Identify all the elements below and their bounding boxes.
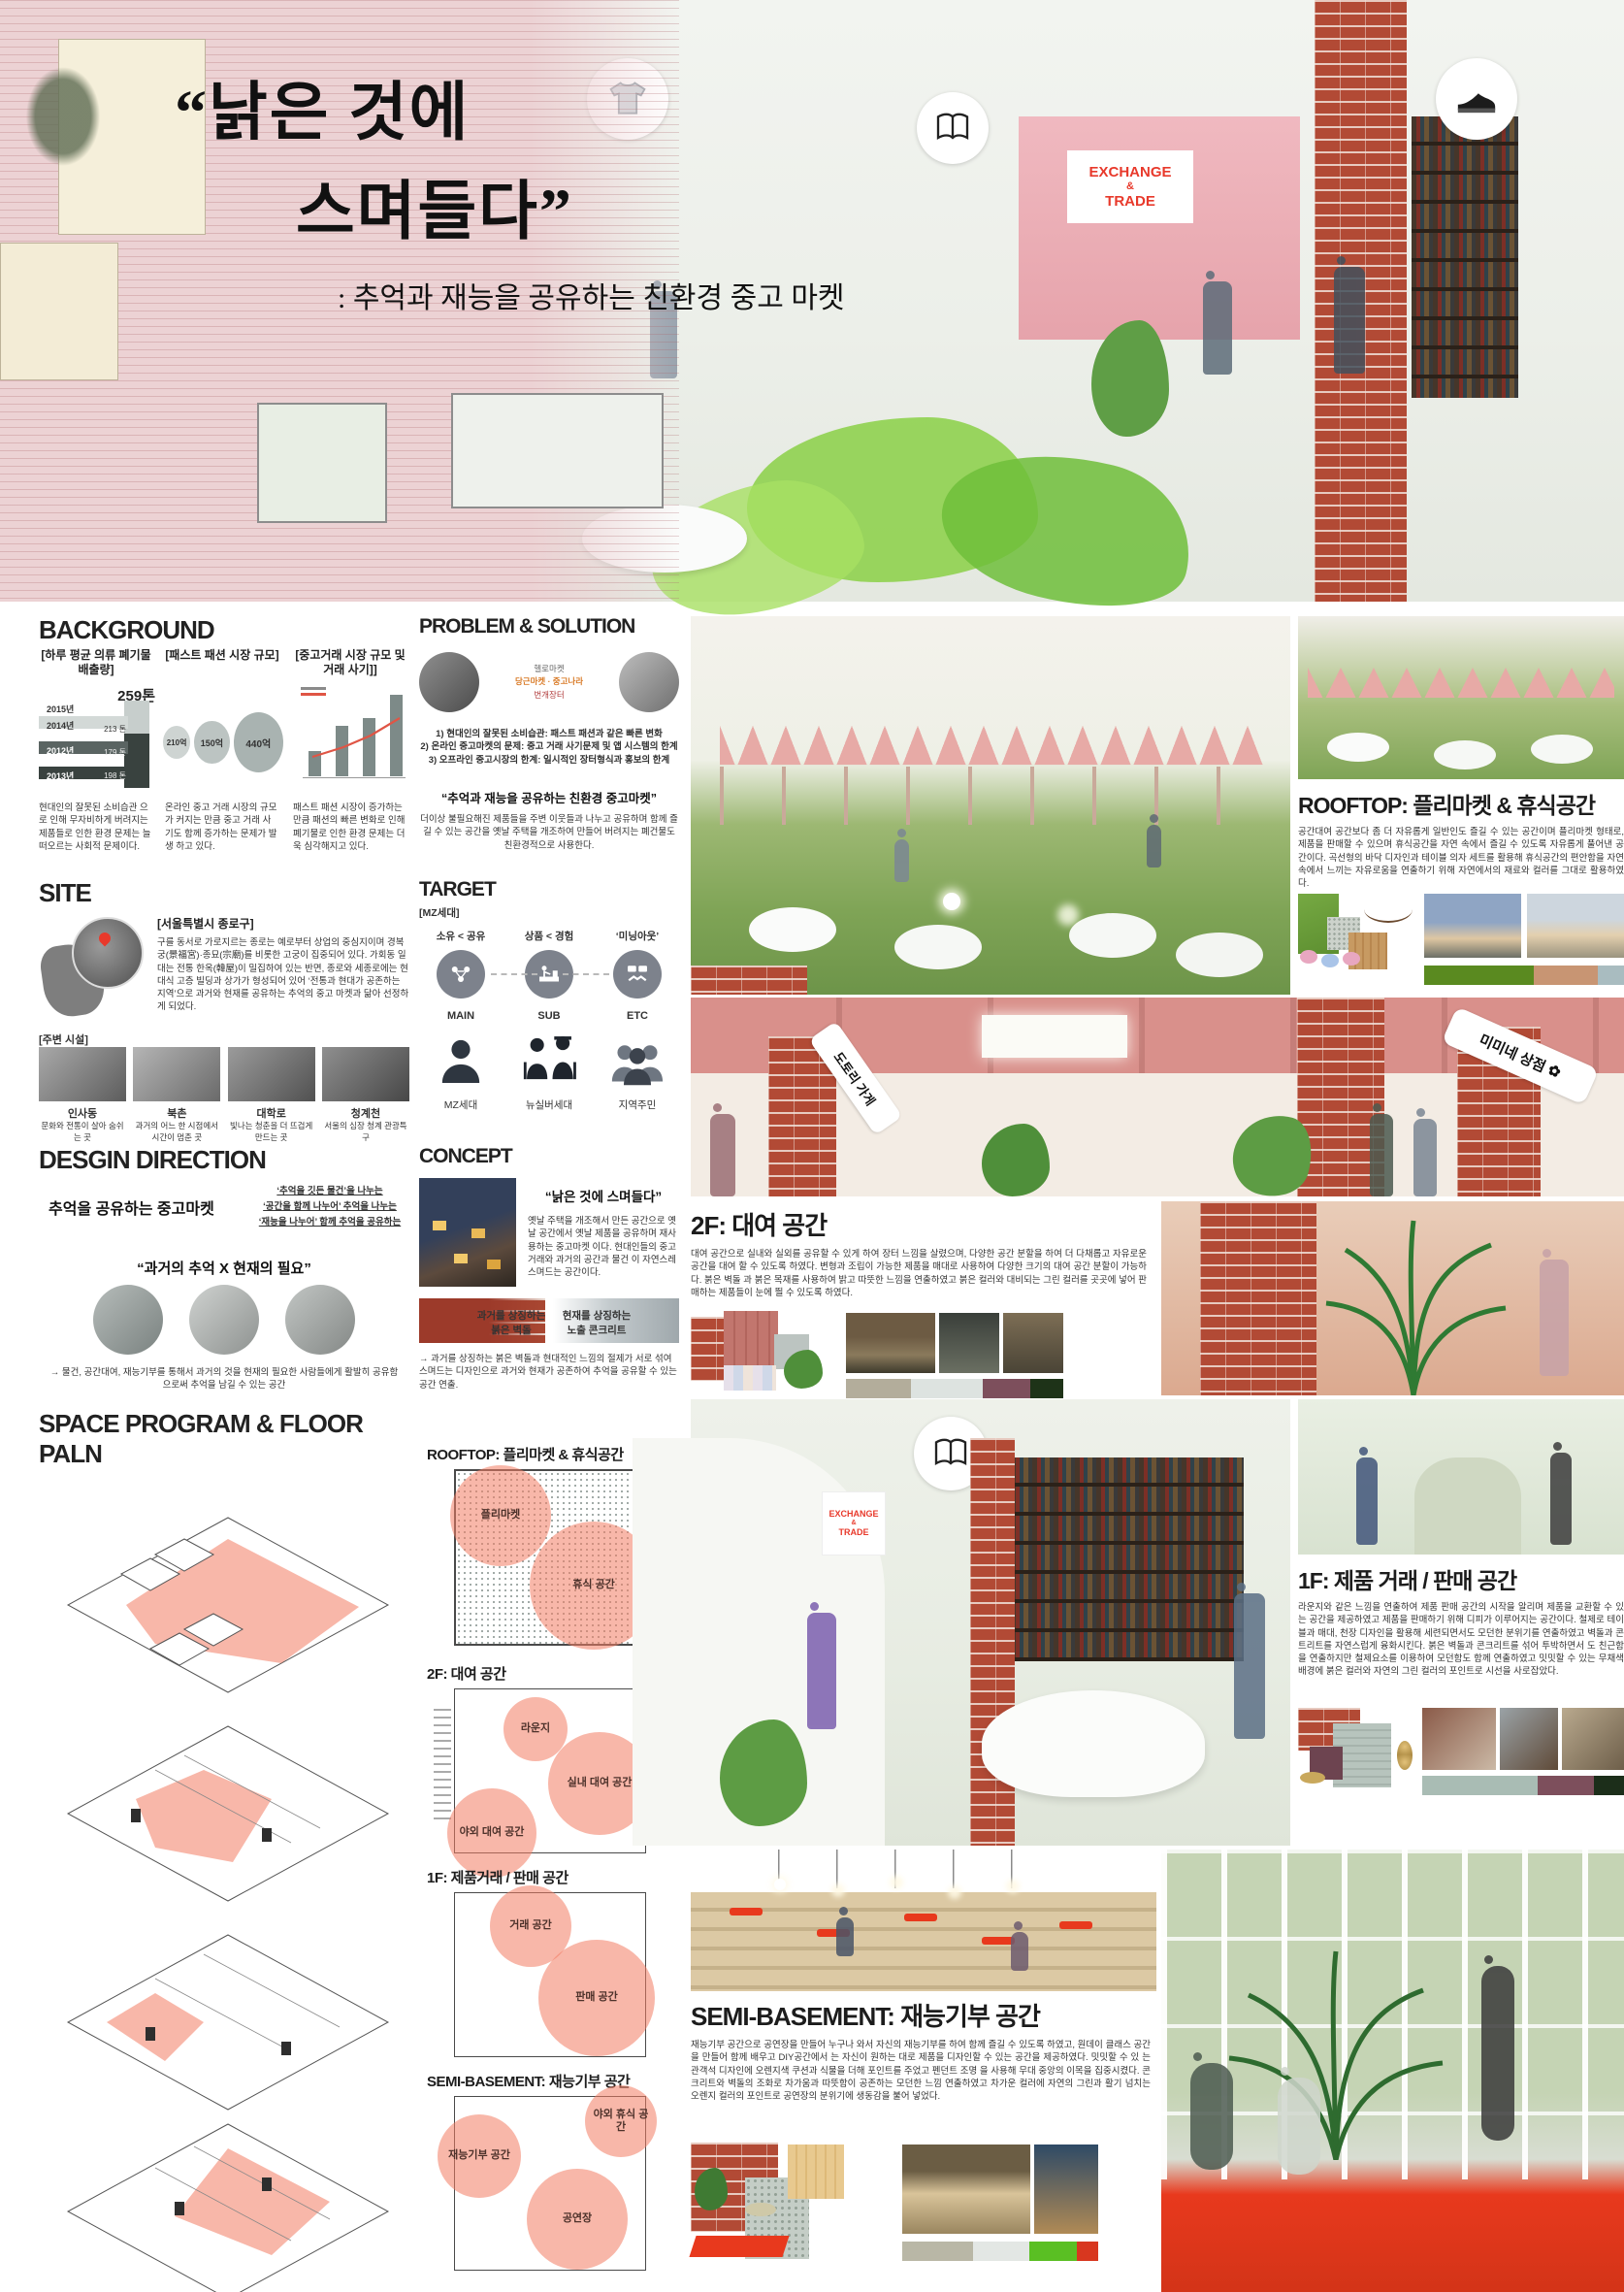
tier-label: ETC bbox=[596, 1010, 679, 1022]
trait: 상품 < 경험 bbox=[507, 929, 591, 943]
chart2-caption: 온라인 중고 거래 시장의 규모가 커지는 만큼 중고 거래 사기도 함께 증가… bbox=[165, 802, 279, 853]
plan-zone: 판매 공간 bbox=[538, 1940, 655, 2056]
sign-line3: TRADE bbox=[839, 1527, 869, 1538]
nearby-desc: 과거의 어느 한 시점에서 시간이 멈춘 곳 bbox=[133, 1121, 220, 1144]
f1-description: 라운지와 같은 느낌을 연출하여 제품 판매 공간의 시작을 알리며 제품을 교… bbox=[1298, 1601, 1624, 1679]
trait: ‘미닝아웃’ bbox=[596, 929, 679, 943]
person-figure bbox=[1190, 2063, 1233, 2170]
person-figure bbox=[1147, 825, 1161, 868]
plan-zone: 야외 휴식 공간 bbox=[585, 2085, 657, 2157]
f1-title: 1F: 제품 거래 / 판매 공간 bbox=[1298, 1562, 1624, 1595]
red-cushion bbox=[730, 1908, 763, 1915]
bubble-value: 150억 bbox=[201, 737, 223, 749]
elevation-planter bbox=[19, 58, 107, 175]
trend-line bbox=[299, 687, 407, 790]
sneaker-icon bbox=[1436, 58, 1517, 140]
design-direction-section: DESGIN DIRECTION 추억을 공유하는 중고마켓 ‘추억을 깃든 물… bbox=[39, 1145, 409, 1399]
direction-conclusion: → 물건, 공간대여, 재능기부를 통해서 과거의 것을 현재의 필요한 사람들… bbox=[49, 1366, 400, 1392]
pendant-lights bbox=[778, 1850, 1069, 1888]
plan-zone: 플리마켓 bbox=[450, 1465, 551, 1566]
site-map bbox=[39, 917, 146, 1024]
palette-color bbox=[1424, 966, 1534, 985]
app-logo: 번개장터 bbox=[503, 689, 596, 703]
rooftop-ref-photo bbox=[1424, 894, 1521, 958]
f1-materials bbox=[1298, 1708, 1414, 1801]
app-logo: 당근마켓 bbox=[515, 676, 545, 686]
zone-label: 플리마켓 bbox=[481, 1509, 520, 1522]
old-items-photo bbox=[93, 1285, 163, 1355]
person-figure bbox=[807, 1613, 836, 1729]
nearby-item: 인사동 문화와 전통이 살아 숨쉬는 곳 bbox=[39, 1047, 126, 1144]
waste-year: 2012년 bbox=[47, 746, 74, 756]
label-line: 현재를 상징하는 bbox=[543, 1308, 650, 1323]
sign-line1: EXCHANGE bbox=[828, 1509, 878, 1520]
market-photo bbox=[619, 652, 679, 712]
f1-ref-photo bbox=[1500, 1708, 1558, 1770]
nearby-name: 인사동 bbox=[39, 1105, 126, 1121]
silver-couple-icon bbox=[507, 1031, 591, 1086]
site-location-label: [서울특별시 종로구] bbox=[157, 917, 409, 932]
sb-ref-photo bbox=[1034, 2145, 1098, 2234]
palette-color bbox=[1538, 1776, 1594, 1795]
bookshelf bbox=[1412, 116, 1518, 398]
mz-person-icon bbox=[419, 1035, 503, 1086]
f1-ref-photo bbox=[1562, 1708, 1624, 1770]
sb-render-image bbox=[691, 1850, 1156, 1991]
problem-solution-heading: PROBLEM & SOLUTION bbox=[419, 615, 679, 638]
hero-section: EXCHANGE & TRADE bbox=[0, 0, 1624, 602]
problem-item: 2) 온라인 중고마켓의 문제: 중고 거래 사기문제 및 앱 시스템의 한계 bbox=[419, 740, 679, 753]
nearby-name: 대학로 bbox=[228, 1105, 315, 1121]
zone-label: 실내 대여 공간 bbox=[568, 1777, 633, 1789]
direction-note: ‘추억을 깃든 물건’을 나누는 bbox=[250, 1184, 409, 1199]
sb-plan: 재능기부 공간 야외 휴식 공간 공연장 bbox=[454, 2096, 646, 2271]
title-line1: “낡은 것에 bbox=[175, 60, 718, 153]
white-seat-pod bbox=[1327, 733, 1389, 762]
problem-item: 1) 현대인의 잘못된 소비습관: 패스트 패션과 같은 빠른 변화 bbox=[419, 728, 679, 740]
waste-value: 179 톤 bbox=[104, 747, 126, 758]
concept-quote: “낡은 것에 스며들다” bbox=[528, 1186, 679, 1205]
nearby-label: [주변 시설] bbox=[39, 1031, 88, 1047]
direction-formula: “과거의 추억 X 현재의 필요” bbox=[39, 1258, 409, 1278]
plaster-pod bbox=[1414, 1457, 1521, 1555]
rooftop-render-image bbox=[691, 616, 1290, 995]
palm-plant bbox=[1219, 1937, 1452, 2160]
dashed-connector bbox=[563, 973, 609, 975]
person-figure bbox=[1011, 1932, 1028, 1971]
palette-color bbox=[1030, 1379, 1063, 1398]
background-heading: BACKGROUND bbox=[39, 615, 409, 645]
group-name: 지역주민 bbox=[596, 1097, 679, 1112]
background-section: BACKGROUND [하루 평균 의류 폐기물 배출량] [패스트 패션 시장… bbox=[39, 615, 409, 869]
consumption-photo bbox=[419, 652, 479, 712]
person-figure bbox=[1334, 267, 1365, 374]
map-zoom-circle bbox=[72, 917, 144, 989]
sharing-network-icon bbox=[437, 950, 485, 999]
f2-description: 대여 공간으로 실내와 실외를 공유할 수 있게 하여 장터 느낌을 살렸으며,… bbox=[691, 1248, 1147, 1299]
elevation-wall-cream bbox=[0, 243, 118, 380]
problem-item: 3) 오프라인 중고시장의 한계: 일시적인 장터형식과 홍보의 한계 bbox=[419, 754, 679, 767]
target-heading: TARGET bbox=[419, 878, 679, 901]
waste-year: 2013년 bbox=[47, 771, 74, 781]
material-concrete-label: 현재를 상징하는 노출 콘크리트 bbox=[543, 1308, 650, 1337]
exchange-trade-sign: EXCHANGE & TRADE bbox=[1067, 150, 1193, 223]
axonometric-diagram bbox=[39, 1479, 417, 2292]
sign-line1: EXCHANGE bbox=[1088, 164, 1171, 180]
bubble: 150억 bbox=[194, 721, 229, 764]
f2-plan-title: 2F: 대여 공간 bbox=[427, 1663, 506, 1684]
brick-planter bbox=[691, 966, 807, 995]
plan-zone: 재능기부 공간 bbox=[438, 2114, 521, 2198]
sb-plan-title: SEMI-BASEMENT: 재능기부 공간 bbox=[427, 2071, 630, 2091]
white-seat-pod bbox=[749, 907, 836, 952]
rooftop-palette bbox=[1424, 966, 1624, 985]
concept-conclusion: → 과거를 상징하는 붉은 벽돌과 현대적인 느낌의 절제가 서로 섞여 스며드… bbox=[419, 1353, 679, 1392]
round-table-icon bbox=[745, 2203, 776, 2216]
pink-roof-gables bbox=[720, 709, 1263, 769]
plant bbox=[982, 1124, 1050, 1196]
person-figure bbox=[1203, 281, 1232, 375]
problem-solution-section: PROBLEM & SOLUTION 헬로마켓 당근마켓 · 중고나라 번개장터… bbox=[419, 615, 679, 869]
palette-color bbox=[1422, 1776, 1538, 1795]
rooftop-render-thumb bbox=[1298, 616, 1624, 779]
f1-plan-title: 1F: 제품거래 / 판매 공간 bbox=[427, 1867, 568, 1887]
f1-plan: 거래 공간 판매 공간 bbox=[454, 1892, 646, 2057]
nearby-desc: 문화와 전통이 살아 숨쉬는 곳 bbox=[39, 1121, 126, 1144]
solution-slogan: “추억과 재능을 공유하는 친환경 중고마켓” bbox=[419, 788, 679, 806]
skylight bbox=[982, 1015, 1127, 1058]
palette-color bbox=[983, 1379, 1030, 1398]
rooftop-ref-photo bbox=[1527, 894, 1624, 958]
tier-label: SUB bbox=[507, 1010, 591, 1022]
house-window-light bbox=[433, 1221, 446, 1230]
person-figure bbox=[1234, 1593, 1265, 1739]
nearby-desc: 서울의 심장 청계 관광특구 bbox=[322, 1121, 409, 1144]
direction-statement: 추억을 공유하는 중고마켓 bbox=[49, 1195, 243, 1219]
person-figure bbox=[710, 1114, 735, 1196]
string-lights-icon bbox=[1364, 896, 1413, 923]
group-icons-row bbox=[419, 1031, 679, 1086]
site-heading: SITE bbox=[39, 878, 409, 908]
sign-line3: TRADE bbox=[1105, 193, 1155, 210]
waste-value: 198 톤 bbox=[104, 770, 126, 781]
f2-ref-photo bbox=[1003, 1313, 1063, 1373]
groups-row: MZ세대 뉴실버세대 지역주민 bbox=[419, 1097, 679, 1112]
label-line: 노출 콘크리트 bbox=[543, 1323, 650, 1337]
plant-swatch bbox=[784, 1350, 823, 1389]
wood-swatch bbox=[788, 2145, 844, 2199]
group-name: MZ세대 bbox=[419, 1097, 503, 1112]
chart3-label: [중고거래 시장 규모 및 거래 사기]] bbox=[293, 648, 407, 677]
key-photo bbox=[189, 1285, 259, 1355]
dashed-connector bbox=[491, 973, 537, 975]
space-program-heading: SPACE PROGRAM & FLOOR PALN bbox=[39, 1409, 417, 1469]
cheonggyecheon-photo bbox=[322, 1047, 409, 1101]
palm-plant bbox=[1307, 1211, 1520, 1395]
brick-column bbox=[1200, 1201, 1316, 1395]
person-figure bbox=[1540, 1260, 1569, 1376]
palette-color bbox=[902, 2242, 973, 2261]
presentation-board: EXCHANGE & TRADE bbox=[0, 0, 1624, 2292]
person-figure bbox=[1370, 1114, 1393, 1196]
roof-posts bbox=[720, 767, 1263, 825]
sign-line2: & bbox=[1126, 180, 1134, 193]
meaning-out-icon bbox=[613, 950, 662, 999]
rooftop-plan: 플리마켓 휴식 공간 bbox=[454, 1469, 648, 1646]
zone-label: 거래 공간 bbox=[509, 1919, 552, 1932]
fashion-bubble-chart: 210억 150억 440억 bbox=[163, 699, 283, 786]
problem-items: 1) 현대인의 잘못된 소비습관: 패스트 패션과 같은 빠른 변화 2) 온라… bbox=[419, 728, 679, 767]
rooftop-plan-title: ROOFTOP: 플리마켓 & 휴식공간 bbox=[427, 1444, 624, 1464]
traits-row: 소유 < 공유 상품 < 경험 ‘미닝아웃’ bbox=[419, 929, 679, 943]
sign-line2: & bbox=[851, 1520, 856, 1527]
exchange-trade-sign: EXCHANGE & TRADE bbox=[822, 1491, 886, 1555]
sb-description: 재능기부 공간으로 공연장을 만들어 누구나 와서 자신의 재능기부를 하여 함… bbox=[691, 2039, 1151, 2103]
chart2-label: [패스트 패션 시장 규모] bbox=[165, 648, 279, 663]
f2-plan: 라운지 실내 대여 공간 야외 대여 공간 bbox=[454, 1688, 646, 1853]
tier-label: MAIN bbox=[419, 1010, 503, 1022]
space-program-section: SPACE PROGRAM & FLOOR PALN bbox=[39, 1409, 417, 2282]
bubble: 210억 bbox=[163, 726, 190, 759]
direction-notes: ‘추억을 깃든 물건’을 나누는 ‘공간을 함께 나누어’ 추억을 나누는 ‘재… bbox=[250, 1184, 409, 1230]
site-section: SITE [서울특별시 종로구] 구를 동서로 가로지르는 종로는 예로부터 상… bbox=[39, 878, 409, 1138]
plan-zone: 야외 대여 공간 bbox=[447, 1788, 536, 1878]
elevation-window bbox=[451, 393, 664, 508]
wood-swatch bbox=[1348, 933, 1387, 969]
f2-text-block: 2F: 대여 공간 대여 공간으로 실내와 실외를 공유할 수 있게 하여 장터… bbox=[691, 1206, 1156, 1395]
sb-text-block: SEMI-BASEMENT: 재능기부 공간 재능기부 공간으로 공연장을 만들… bbox=[691, 1997, 1156, 2288]
concept-heading: CONCEPT bbox=[419, 1145, 679, 1168]
palette-color bbox=[973, 2242, 1030, 2261]
bubble-value: 440억 bbox=[245, 736, 271, 750]
nearby-item: 대학로 빛나는 청춘을 더 뜨겁게 만드는 곳 bbox=[228, 1047, 315, 1144]
zone-label: 야외 휴식 공간 bbox=[589, 2109, 653, 2134]
f2-title: 2F: 대여 공간 bbox=[691, 1206, 1156, 1242]
pendant-lamp-icon bbox=[1397, 1741, 1413, 1770]
target-segment-label: [MZ세대] bbox=[419, 905, 679, 920]
glow-light bbox=[943, 893, 960, 910]
zone-label: 재능기부 공간 bbox=[448, 2149, 510, 2162]
plant bbox=[695, 2168, 728, 2210]
app-logo: 헬로마켓 bbox=[503, 663, 596, 676]
lounge-chair-icon bbox=[1300, 950, 1317, 964]
f1-ref-photo bbox=[1422, 1708, 1496, 1770]
waste-value: 213 톤 bbox=[104, 724, 126, 735]
direction-photos bbox=[93, 1285, 355, 1355]
plan-zone: 공연장 bbox=[527, 2169, 628, 2270]
residents-group-icon bbox=[596, 1037, 679, 1086]
site-description: 구를 동서로 가로지르는 종로는 예로부터 상업의 중심지이며 경복궁(景福宮)… bbox=[157, 936, 409, 1014]
waste-year: 2015년 bbox=[47, 703, 74, 715]
chart1-label: [하루 평균 의류 폐기물 배출량] bbox=[39, 648, 153, 677]
person-figure bbox=[1550, 1453, 1572, 1545]
white-counter bbox=[982, 1690, 1205, 1797]
nearby-name: 북촌 bbox=[133, 1105, 220, 1121]
tiers-row: MAIN SUB ETC bbox=[419, 1010, 679, 1022]
palette-color bbox=[1029, 2242, 1076, 2261]
sb-render-tall bbox=[1161, 1850, 1624, 2292]
target-section: TARGET [MZ세대] 소유 < 공유 상품 < 경험 ‘미닝아웃’ MAI… bbox=[419, 878, 679, 1138]
palette-color bbox=[1598, 966, 1624, 985]
palette-color bbox=[1077, 2242, 1098, 2261]
nearby-name: 청계천 bbox=[322, 1105, 409, 1121]
direction-note: ‘공간을 함께 나누어’ 추억을 나누는 bbox=[250, 1199, 409, 1215]
f2-palette bbox=[846, 1379, 1063, 1398]
rooftop-description: 공간대여 공간보다 좀 더 자유롭게 일반인도 즐길 수 있는 공간이며 플리마… bbox=[1298, 826, 1624, 890]
f2-ref-photo bbox=[846, 1313, 935, 1373]
waste-year: 2014년 bbox=[47, 721, 74, 731]
palette-color bbox=[846, 1379, 911, 1398]
title-line2: 스며들다” bbox=[296, 159, 718, 252]
sb-ref-photo bbox=[902, 2145, 1030, 2234]
f1-palette bbox=[1422, 1776, 1624, 1795]
bubble-value: 210억 bbox=[167, 737, 187, 748]
rooftop-materials bbox=[1298, 894, 1414, 971]
app-logos: 헬로마켓 당근마켓 · 중고나라 번개장터 bbox=[503, 663, 596, 703]
person-figure bbox=[836, 1917, 854, 1956]
nearby-item: 북촌 과거의 어느 한 시점에서 시간이 멈춘 곳 bbox=[133, 1047, 220, 1144]
zone-label: 판매 공간 bbox=[575, 1991, 618, 2004]
nearby-item: 청계천 서울의 심장 청계 관광특구 bbox=[322, 1047, 409, 1144]
poster-title: “낡은 것에 스며들다” bbox=[175, 60, 718, 252]
daehangno-photo bbox=[228, 1047, 315, 1101]
nearby-row: 인사동 문화와 전통이 살아 숨쉬는 곳 북촌 과거의 어느 한 시점에서 시간… bbox=[39, 1047, 409, 1144]
trait: 소유 < 공유 bbox=[419, 929, 503, 943]
person-figure bbox=[1278, 2078, 1320, 2175]
palette-color bbox=[1534, 966, 1598, 985]
trait-icons-row bbox=[419, 950, 679, 999]
gold-table-icon bbox=[1300, 1772, 1325, 1784]
f2-materials bbox=[691, 1311, 836, 1392]
person-figure bbox=[1356, 1457, 1378, 1545]
pink-roof-gables bbox=[1308, 655, 1614, 698]
book-icon bbox=[917, 92, 989, 164]
plan-stair-hatch bbox=[434, 1709, 451, 1825]
people-photo bbox=[285, 1285, 355, 1355]
sb-materials bbox=[691, 2143, 894, 2269]
direction-note: ‘재능을 나누어’ 함께 추억을 공유하는 bbox=[250, 1215, 409, 1230]
sb-palette bbox=[902, 2242, 1098, 2261]
secondhand-market-chart bbox=[299, 687, 407, 790]
display-crates bbox=[724, 1365, 776, 1391]
f2-render-continuation bbox=[1161, 1201, 1624, 1395]
palette-color bbox=[911, 1379, 983, 1398]
bubble: 440억 bbox=[234, 712, 283, 772]
flower-icon: ✿ bbox=[1545, 1061, 1564, 1082]
rooftop-title: ROOFTOP: 플리마켓 & 휴식공간 bbox=[1298, 787, 1624, 820]
f1-render-image: EXCHANGE & TRADE bbox=[691, 1399, 1290, 1846]
bookshelf-wall bbox=[1011, 1457, 1244, 1661]
bukchon-photo bbox=[133, 1047, 220, 1101]
zone-label: 야외 대여 공간 bbox=[460, 1826, 525, 1839]
chart3-caption: 패스트 패션 시장이 증가하는 만큼 패션의 빠른 변화로 인해 폐기물로 인한… bbox=[293, 802, 407, 853]
zone-label: 라운지 bbox=[521, 1722, 550, 1735]
x-axis bbox=[303, 777, 406, 778]
sb-title: SEMI-BASEMENT: 재능기부 공간 bbox=[691, 1997, 1156, 2033]
group-name: 뉴실버세대 bbox=[507, 1097, 591, 1112]
chart1-caption: 현대인의 잘못된 소비습관 으로 인해 무자비하게 버려지는 제품들로 인한 환… bbox=[39, 802, 153, 853]
palette-color bbox=[1594, 1776, 1624, 1795]
problem-photos-row: 헬로마켓 당근마켓 · 중고나라 번개장터 bbox=[419, 650, 679, 714]
old-house-photo bbox=[419, 1178, 516, 1287]
red-wood-swatch bbox=[724, 1311, 778, 1367]
app-logo: 중고나라 bbox=[553, 676, 583, 686]
elevation-window bbox=[257, 403, 387, 523]
concept-section: CONCEPT “낡은 것에 스며들다” 옛날 주택을 개조해서 만든 공간으로… bbox=[419, 1145, 679, 1399]
f1-panel: 1F: 제품 거래 / 판매 공간 라운지와 같은 느낌을 연출하여 제품 판매… bbox=[1298, 1399, 1624, 1846]
f1-render-thumb bbox=[1298, 1399, 1624, 1555]
pendant-bulb bbox=[774, 1879, 786, 1890]
person-figure bbox=[894, 839, 909, 882]
concept-description: 옛날 주택을 개조해서 만든 공간으로 옛날 공간에서 옛날 제품을 공유하며 … bbox=[528, 1215, 679, 1279]
f2-render-image: 도토리 가게 미미네 상점✿ bbox=[691, 998, 1624, 1196]
nearby-desc: 빛나는 청춘을 더 뜨겁게 만드는 곳 bbox=[228, 1121, 315, 1144]
zone-label: 공연장 bbox=[563, 2212, 592, 2225]
solution-description: 더이상 불필요해진 제품들을 주변 이웃들과 나누고 공유하며 함께 즐길 수 … bbox=[419, 813, 679, 852]
person-figure bbox=[1413, 1119, 1437, 1196]
f2-ref-photo bbox=[939, 1313, 999, 1373]
red-bench bbox=[689, 2236, 789, 2257]
waste-chart: 259톤 2015년 2014년 2012년 2013년 213 톤 179 톤… bbox=[39, 685, 155, 792]
person-figure bbox=[1481, 1966, 1514, 2141]
design-direction-heading: DESGIN DIRECTION bbox=[39, 1145, 409, 1175]
poster-subtitle: : 추억과 재능을 공유하는 친환경 중고 마켓 bbox=[338, 274, 939, 316]
rooftop-panel: ROOFTOP: 플리마켓 & 휴식공간 공간대여 공간보다 좀 더 자유롭게 … bbox=[1298, 616, 1624, 995]
insadong-photo bbox=[39, 1047, 126, 1101]
zone-label: 휴식 공간 bbox=[572, 1579, 615, 1591]
